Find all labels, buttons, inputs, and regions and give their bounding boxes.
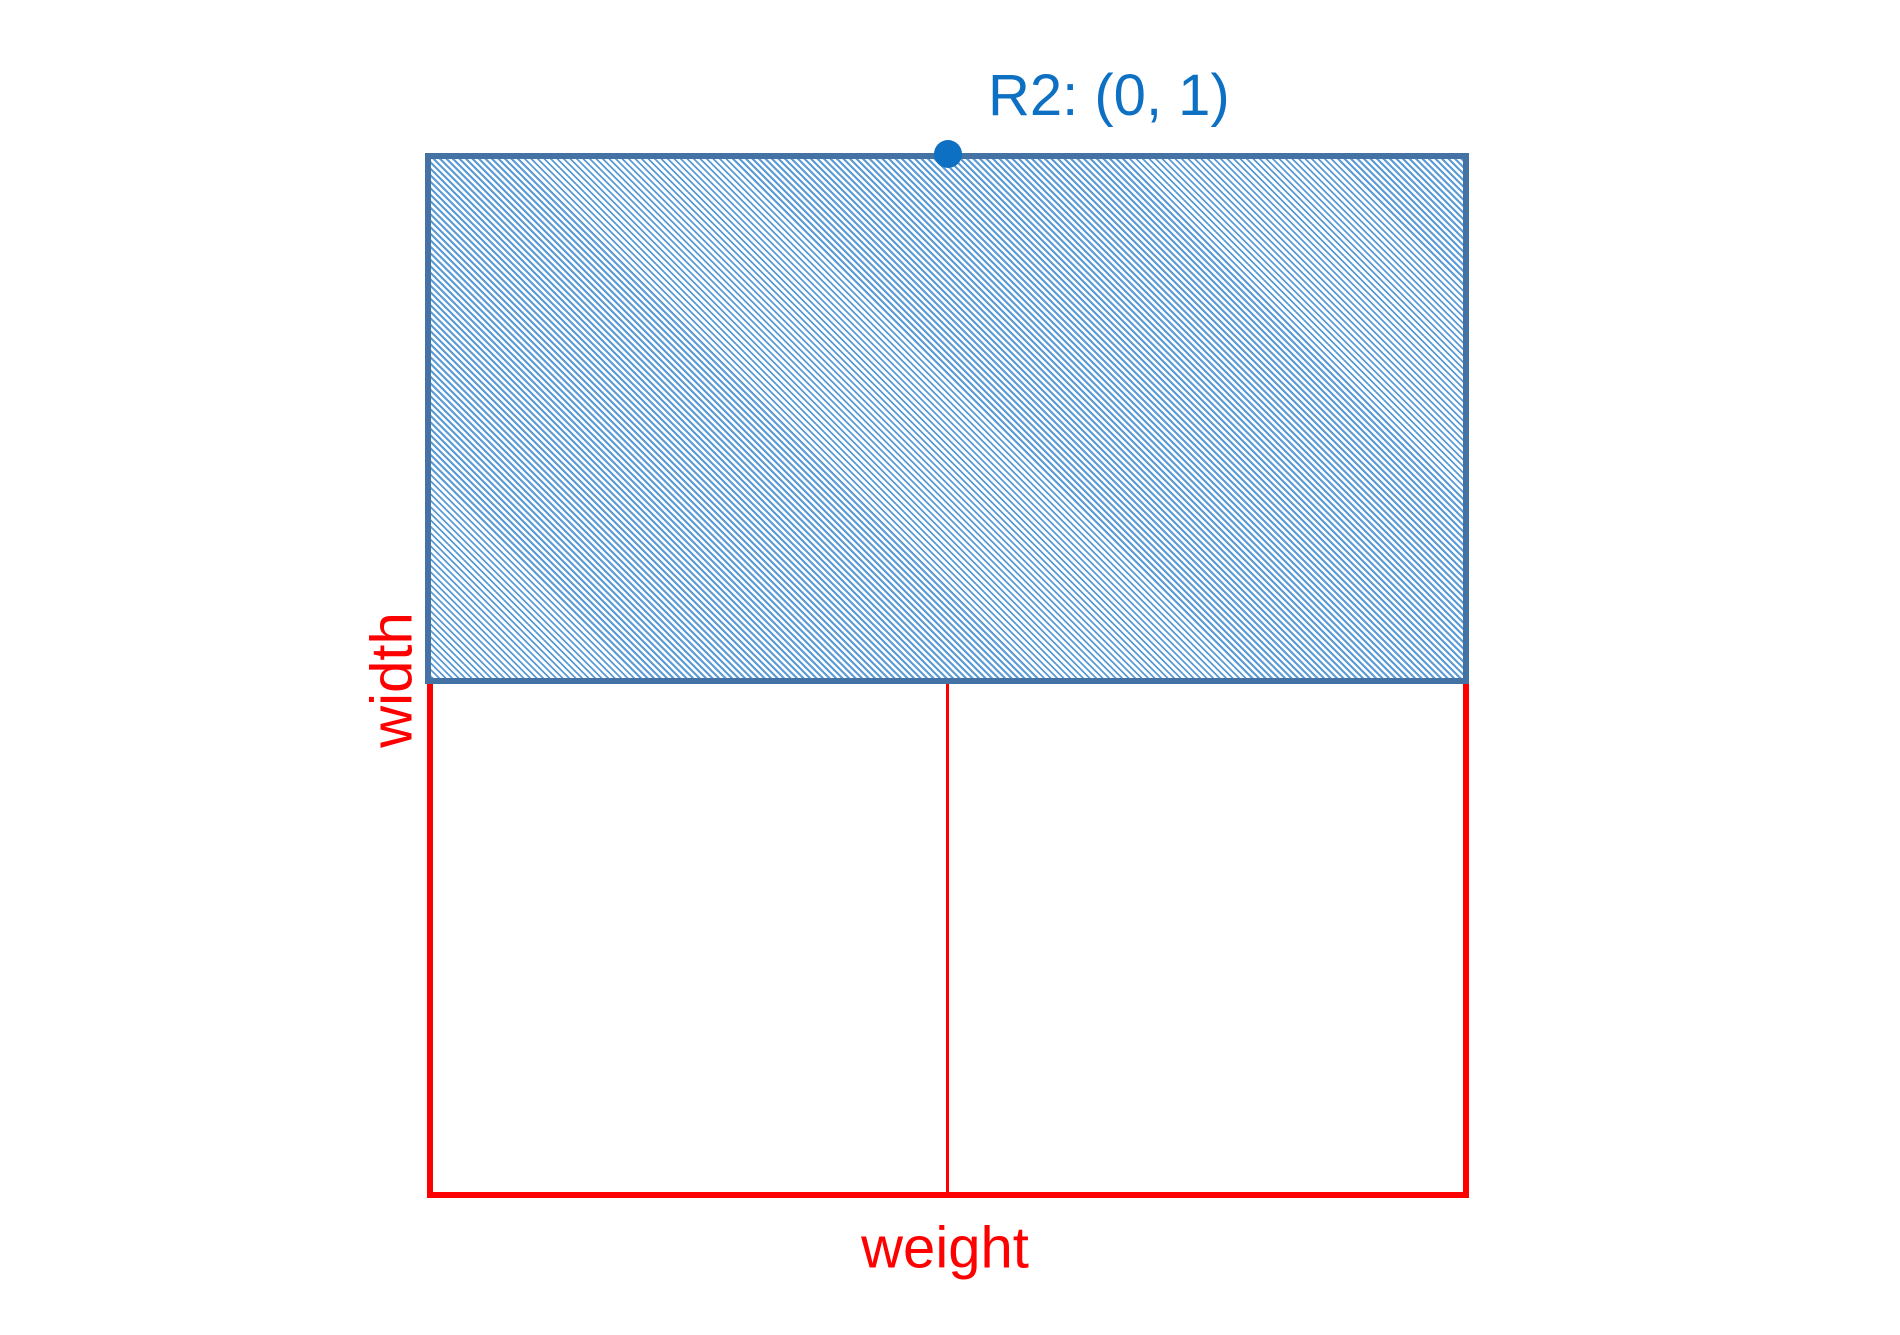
hatched-rectangle bbox=[425, 153, 1469, 684]
point-r2-label: R2: (0, 1) bbox=[988, 66, 1230, 127]
x-axis-label: weight bbox=[861, 1215, 1029, 1282]
diagram-canvas: R2: (0, 1) width weight bbox=[0, 0, 1900, 1335]
y-axis-label: width bbox=[359, 612, 426, 747]
point-r2-dot bbox=[934, 140, 962, 168]
vertical-midline bbox=[946, 684, 949, 1193]
